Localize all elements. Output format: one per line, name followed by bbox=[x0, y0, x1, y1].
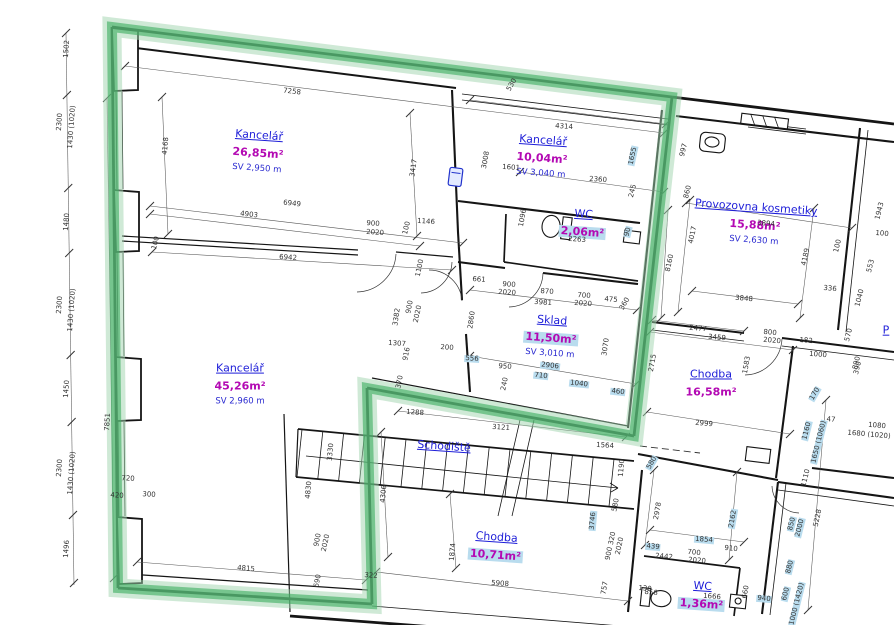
room-area: 11,50m² bbox=[523, 330, 579, 346]
dimension-label: 360 bbox=[619, 296, 632, 311]
dimension-label: 1666 bbox=[703, 593, 721, 602]
dimension-label: 1160 bbox=[801, 421, 813, 442]
dimension-label: 7258 bbox=[283, 88, 301, 97]
dimension-label: 1110 bbox=[800, 469, 811, 488]
dimension-label: 880 bbox=[785, 559, 796, 576]
dimension-label: 660 bbox=[741, 585, 750, 599]
room-label: Kancelář10,04m²SV 3,040 m bbox=[515, 133, 569, 181]
dimension-label: 580 bbox=[645, 455, 659, 472]
dimension-label: 916 bbox=[402, 347, 412, 362]
room-area: 26,85m² bbox=[232, 145, 284, 161]
dimension-label: 860 bbox=[683, 185, 693, 200]
dimension-label: 2020 bbox=[688, 557, 706, 566]
dimension-label: 1190 bbox=[618, 459, 627, 477]
dimension-label: 1430 (1020) bbox=[67, 288, 77, 332]
dimension-label: 182 bbox=[799, 337, 813, 345]
dimension-label: 439 bbox=[645, 543, 661, 551]
room-area: 10,71m² bbox=[467, 547, 523, 563]
room-clear-height: SV 2,630 m bbox=[692, 232, 815, 250]
dimension-label: 997 bbox=[679, 143, 689, 158]
dimension-label: 2999 bbox=[695, 420, 713, 429]
dimension-label: 2360 bbox=[589, 176, 607, 184]
room-name: Provozovna kosmetiky bbox=[694, 197, 817, 218]
dimension-label: 3008 bbox=[481, 151, 491, 170]
room-label: Provozovna kosmetiky15,88m²SV 2,630 m bbox=[692, 197, 818, 250]
dimension-label: 100 bbox=[875, 230, 889, 238]
room-name: WC bbox=[560, 207, 608, 223]
dimension-label: 910 bbox=[724, 545, 738, 553]
dimension-label: 661 bbox=[472, 276, 486, 284]
dimension-label: 3981 bbox=[534, 299, 552, 307]
dimension-label: 2020 bbox=[366, 229, 384, 237]
dimension-label: 4903 bbox=[240, 211, 258, 220]
dimension-label: 1430 (1020) bbox=[67, 451, 77, 495]
dimension-label: 7851 bbox=[104, 413, 112, 431]
dimension-label: 322 bbox=[364, 572, 378, 580]
room-name: Kancelář bbox=[233, 128, 285, 144]
dimension-label: 5908 bbox=[491, 580, 509, 588]
room-name: Kancelář bbox=[517, 133, 569, 149]
dimension-label: 570 bbox=[844, 328, 854, 343]
dimension-label: 1496 bbox=[63, 540, 71, 558]
room-label: Kancelář26,85m²SV 2,950 m bbox=[231, 128, 285, 176]
room-clear-height: SV 3,010 m bbox=[522, 348, 578, 362]
dimension-label: 2860 bbox=[467, 311, 476, 330]
dimension-label: 100 bbox=[402, 221, 412, 236]
dimension-label: 3848 bbox=[735, 295, 753, 304]
dimension-label: 2020 bbox=[498, 289, 516, 297]
room-label: Chodba16,58m² bbox=[685, 368, 736, 399]
room-name: Chodba bbox=[469, 530, 525, 546]
room-clear-height: SV 3,040 m bbox=[515, 168, 567, 181]
dimension-label: 2442 bbox=[655, 553, 673, 562]
dimension-label: 940 bbox=[756, 595, 772, 603]
room-name: P bbox=[883, 325, 890, 338]
dimension-label: 240 bbox=[500, 377, 510, 392]
dimension-label: 856 bbox=[644, 589, 658, 597]
dimension-label: 8160 bbox=[665, 254, 676, 273]
dimension-label: 1564 bbox=[596, 442, 614, 450]
dimension-label: 2715 bbox=[648, 354, 658, 373]
dimension-label: 1430 (1020) bbox=[67, 105, 77, 149]
dimension-label: 4168 bbox=[162, 137, 171, 155]
dimension-label: 475 bbox=[604, 296, 618, 304]
room-area: 10,04m² bbox=[516, 150, 568, 166]
dimension-label: 6949 bbox=[283, 200, 301, 209]
dimension-label: 556 bbox=[464, 355, 480, 363]
dimension-label: 3330 bbox=[327, 443, 336, 461]
dimension-label: 2906 bbox=[540, 361, 560, 370]
room-name: Schodiště bbox=[417, 439, 471, 455]
dimension-label: 2300 bbox=[56, 459, 64, 477]
dimension-label: 6942 bbox=[279, 254, 297, 262]
dimension-label: 90 bbox=[623, 226, 632, 238]
dimension-label: 1100 bbox=[415, 259, 426, 278]
dimension-label: 2020 bbox=[615, 537, 626, 556]
floor-plan-canvas: Kancelář26,85m²SV 2,950 mKancelář10,04m²… bbox=[0, 0, 894, 625]
dimension-label: 1650 (1060) bbox=[810, 419, 828, 465]
dimension-label: 3417 bbox=[409, 159, 418, 178]
dimension-label: 3070 bbox=[601, 338, 610, 357]
room-label: Chodba10,71m² bbox=[467, 530, 524, 565]
room-name: Sklad bbox=[524, 313, 580, 329]
room-label: Schodiště bbox=[417, 439, 471, 455]
dimension-label: 100 bbox=[833, 239, 843, 254]
dimension-label: 100 bbox=[151, 236, 161, 251]
dimension-label: 2162 bbox=[728, 509, 738, 530]
dimension-label: 2020 bbox=[574, 300, 592, 308]
dimension-label: 1040 bbox=[854, 289, 865, 308]
dimension-label: 1146 bbox=[417, 218, 435, 226]
dimension-label: 370 bbox=[395, 375, 405, 390]
dimension-label: 3894 bbox=[757, 220, 775, 229]
dimension-label: 1943 bbox=[874, 202, 885, 221]
dimension-label: 3746 bbox=[589, 511, 598, 531]
dimension-label: 4830 bbox=[305, 481, 314, 499]
dimension-label: 900 bbox=[366, 220, 380, 228]
dimension-label: 2020 bbox=[321, 534, 332, 553]
dimension-label: 3459 bbox=[708, 334, 726, 343]
dimension-label: 2300 bbox=[56, 113, 64, 131]
dimension-label: 1480 bbox=[63, 213, 71, 231]
dimension-label: 2477 bbox=[689, 325, 707, 334]
dimension-label: 336 bbox=[823, 285, 837, 293]
dimension-label: 600 bbox=[781, 586, 792, 603]
dimension-label: 1874 bbox=[449, 543, 458, 561]
room-name: Kancelář bbox=[214, 363, 265, 376]
dimension-label: 1680 (1020) bbox=[847, 430, 891, 441]
dimension-label: 1854 bbox=[694, 536, 714, 545]
dimension-label: 2300 bbox=[56, 296, 64, 314]
dimension-label: 580 bbox=[611, 498, 621, 513]
room-clear-height: SV 2,950 m bbox=[231, 163, 283, 176]
dimension-label: 1040 bbox=[569, 379, 589, 388]
dimension-label: 870 bbox=[540, 288, 554, 296]
room-area: 16,58m² bbox=[685, 386, 736, 399]
dimension-label: 1655 bbox=[628, 146, 639, 167]
dimension-label: 3121 bbox=[492, 424, 510, 432]
dimension-label: 710 bbox=[533, 372, 549, 381]
dimension-label: 2263 bbox=[568, 236, 586, 244]
dimension-label: 4314 bbox=[555, 123, 573, 131]
dimension-label: 200 bbox=[440, 344, 454, 352]
dimension-label: 170 bbox=[808, 386, 822, 403]
dimension-label: 1583 bbox=[742, 356, 752, 375]
room-label: P bbox=[883, 325, 890, 338]
room-clear-height: SV 2,960 m bbox=[214, 398, 265, 408]
dimension-label: 1450 bbox=[63, 380, 71, 398]
dimension-label: 4815 bbox=[237, 565, 255, 574]
dimension-label: 420 bbox=[110, 492, 124, 500]
dimension-label: 1080 bbox=[868, 422, 886, 431]
dimension-label: 553 bbox=[866, 259, 876, 274]
dimension-label: 2978 bbox=[653, 502, 663, 521]
dimension-label: 530 bbox=[506, 77, 519, 92]
dimension-label: 1502 bbox=[63, 40, 71, 58]
dimension-label: 300 bbox=[142, 491, 156, 499]
dimension-label: 1096 bbox=[518, 209, 528, 228]
dimension-label: 1601 bbox=[502, 164, 520, 172]
dimension-label: 950 bbox=[498, 363, 512, 371]
room-label: Sklad11,50m²SV 3,010 m bbox=[522, 313, 580, 362]
room-area: 45,26m² bbox=[214, 380, 265, 393]
dimension-label: 720 bbox=[121, 475, 135, 483]
dimension-label: 4306 bbox=[380, 485, 389, 503]
dimension-label: 2020 bbox=[763, 337, 781, 346]
dimension-label: 690 bbox=[313, 574, 323, 589]
dimension-label: 1288 bbox=[406, 409, 424, 417]
dimension-label: 245 bbox=[628, 184, 638, 199]
dimension-label: 4189 bbox=[801, 248, 812, 267]
dimension-label: 2020 bbox=[413, 305, 424, 324]
dimension-label: 1000 bbox=[809, 351, 827, 360]
dimension-label: 757 bbox=[600, 581, 609, 595]
room-label: Kancelář45,26m²SV 2,960 m bbox=[214, 363, 265, 408]
room-name: Chodba bbox=[685, 368, 736, 381]
dimension-label: 3382 bbox=[392, 308, 401, 327]
label-layer: Kancelář26,85m²SV 2,950 mKancelář10,04m²… bbox=[0, 0, 894, 625]
dimension-label: 460 bbox=[610, 388, 626, 397]
dimension-label: 5228 bbox=[813, 509, 824, 528]
